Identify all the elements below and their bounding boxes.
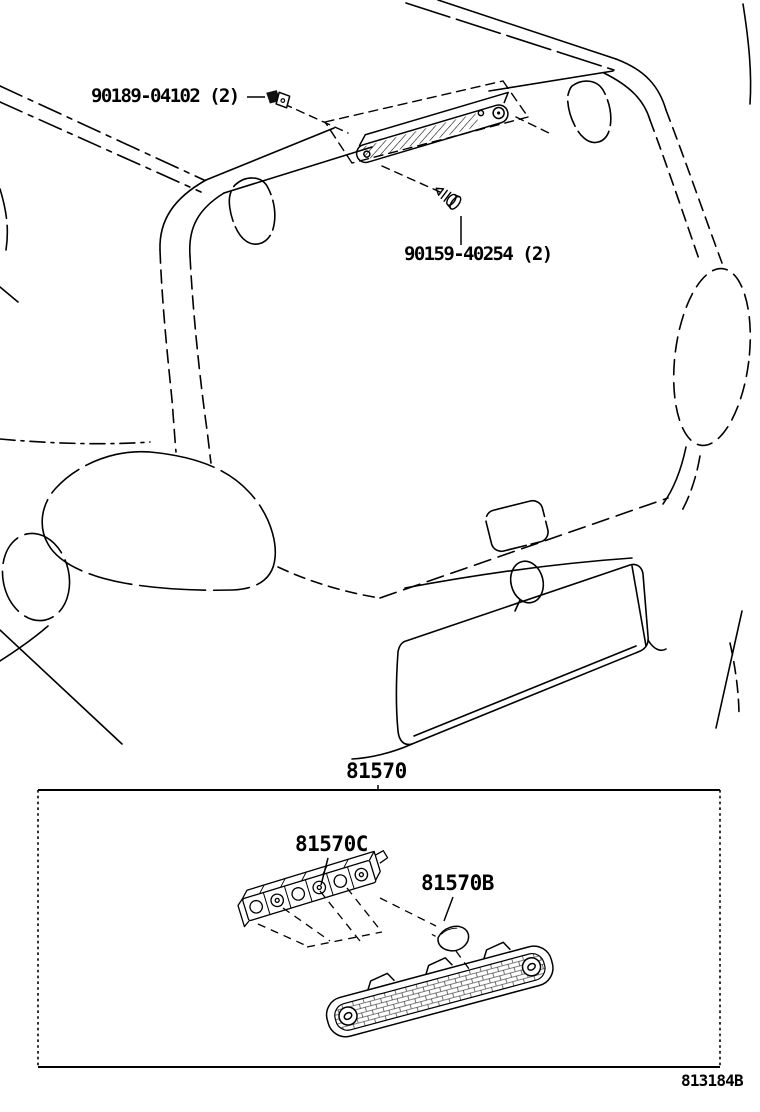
tail-lamp-left	[42, 452, 275, 591]
clip-icon	[265, 89, 290, 108]
callout-socket-part-number: 81570C	[295, 834, 368, 855]
socket-strip-drawing	[234, 848, 394, 926]
rear-hatch-drawing	[0, 0, 760, 759]
screw-icon	[432, 182, 463, 210]
callout-screw-part-number: 90159-40254 (2)	[404, 245, 552, 264]
callout-bulb-part-number: 81570B	[421, 873, 494, 894]
hinge-cover-left	[229, 178, 274, 244]
parts-diagram-page: 90189-04102 (2) 90159-40254 (2) 81570 81…	[0, 0, 760, 1112]
high-mount-stop-lamp-drawing	[352, 92, 516, 164]
callout-assembly-part-number: 81570	[346, 761, 407, 782]
bulb-drawing	[432, 923, 472, 956]
leader-lines	[247, 97, 461, 921]
callout-clip-part-number: 90189-04102 (2)	[91, 87, 239, 106]
hinge-cover-right	[568, 81, 611, 142]
lock-cylinder	[506, 558, 547, 606]
detail-box-frame	[38, 790, 720, 1067]
lamp-housing-drawing	[320, 931, 557, 1040]
license-plate-recess	[352, 564, 666, 759]
line-art	[0, 0, 760, 1112]
tail-lamp-right	[664, 264, 759, 450]
figure-code: 813184B	[681, 1073, 743, 1089]
